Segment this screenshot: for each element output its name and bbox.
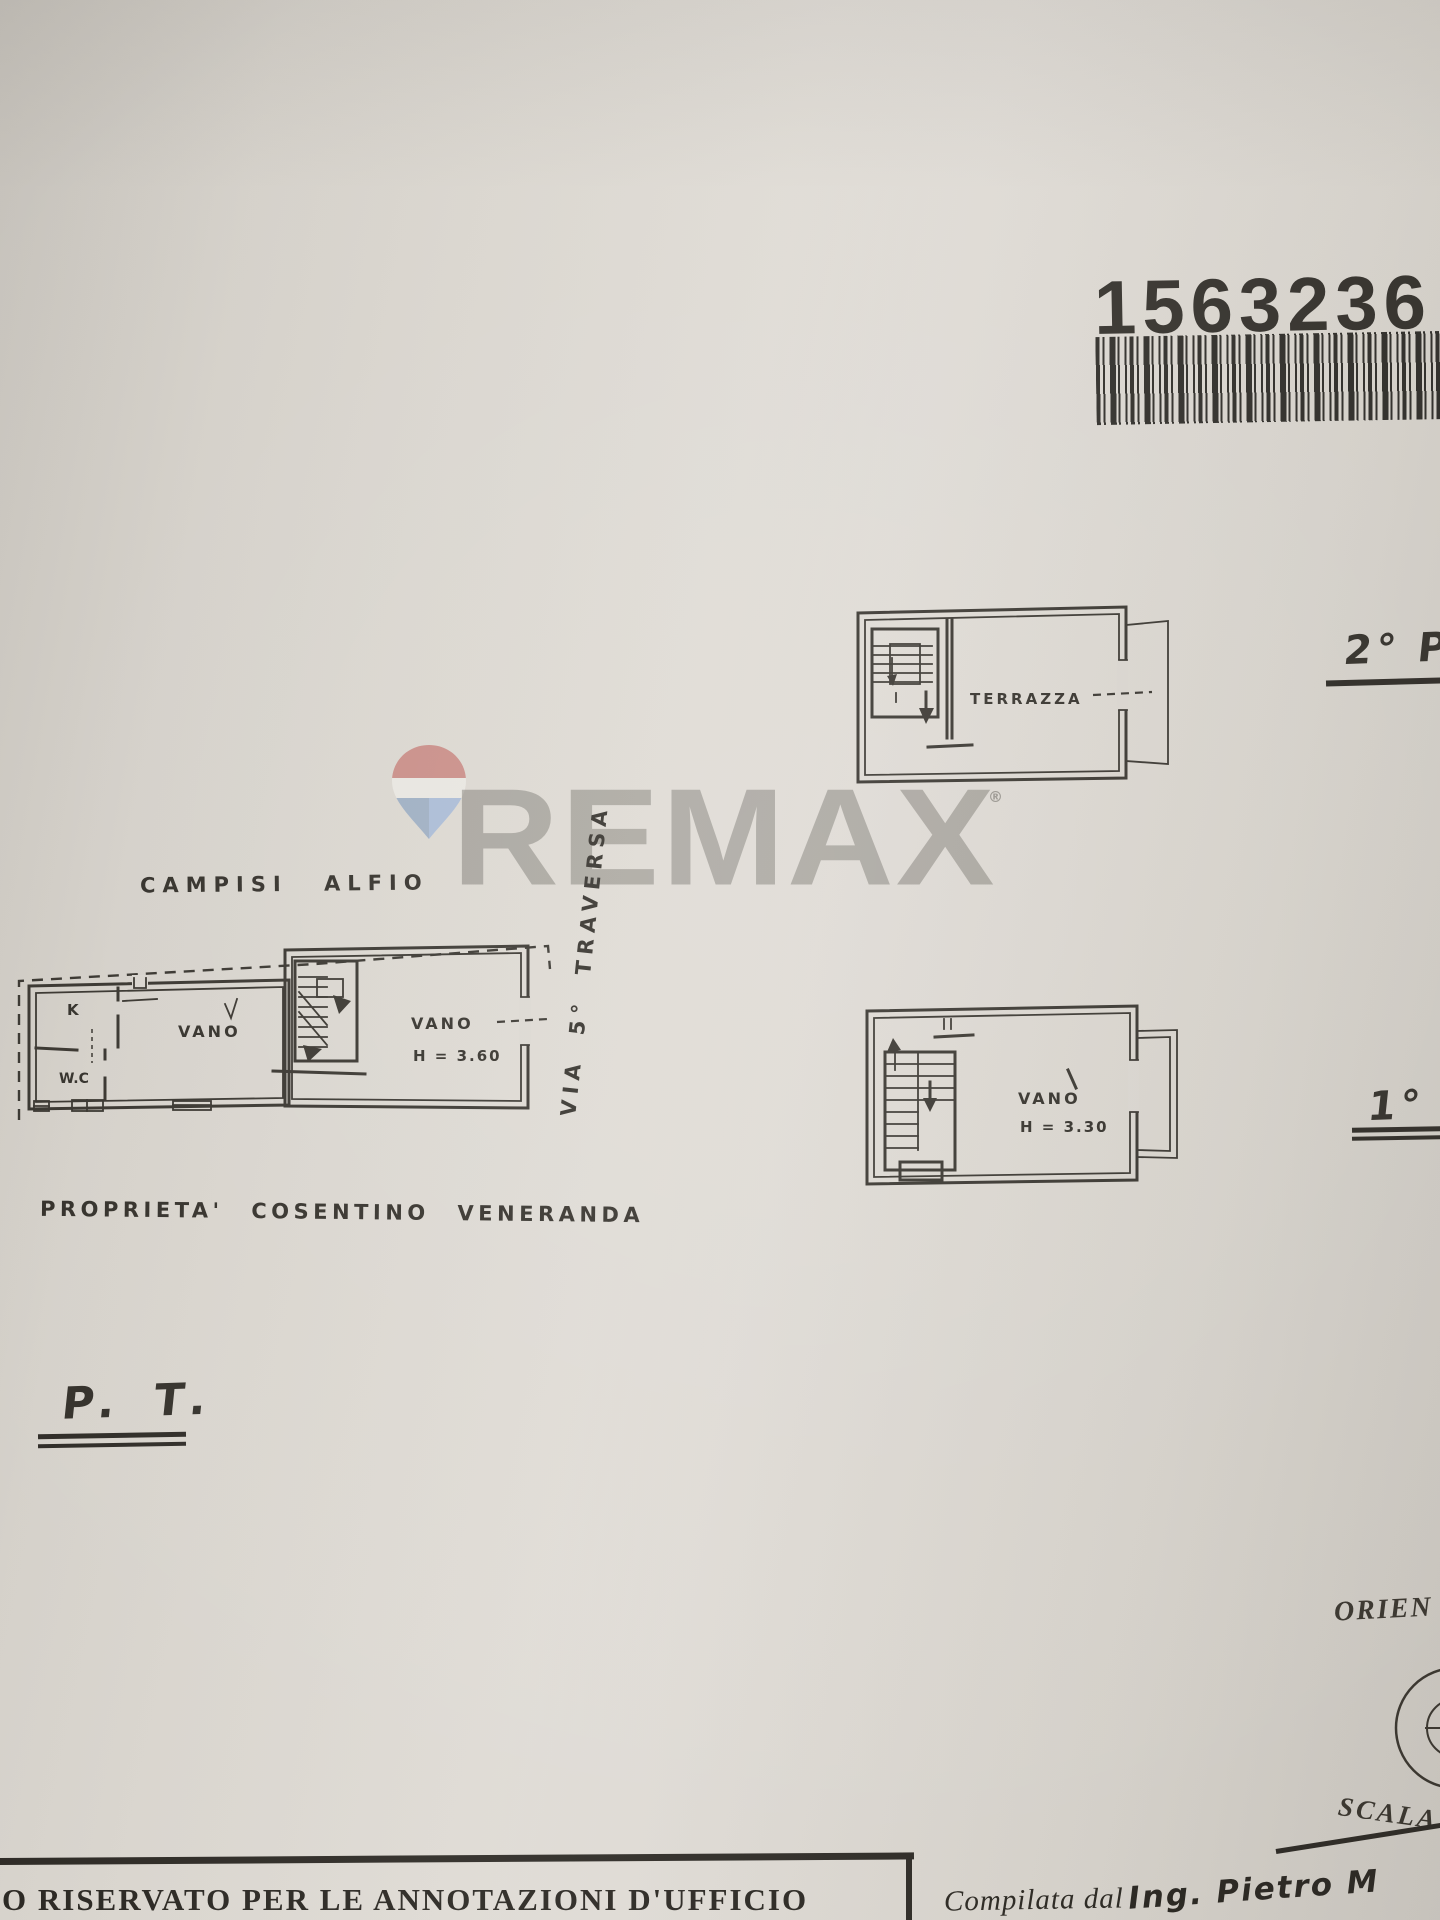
first-floor-title-underline bbox=[1352, 1126, 1440, 1133]
second-floor-title: 2° P. bbox=[1342, 624, 1440, 674]
ground-floor-title: P. T. bbox=[59, 1373, 221, 1430]
ground-floor-title-underline bbox=[38, 1432, 186, 1440]
second-floor-plan: TERRAZZA bbox=[850, 596, 1180, 796]
cadastral-floorplan-scan: 1563236 REMAX ® TERRAZZA 2° P. CAMP bbox=[0, 0, 1440, 1920]
first-floor-title: 1° P. bbox=[1366, 1080, 1440, 1130]
compiled-by-printed-label: Compilata dal bbox=[944, 1882, 1124, 1918]
compass-icon bbox=[1383, 1652, 1440, 1802]
ground-floor-title-underline bbox=[38, 1442, 186, 1449]
annotations-box-right-border bbox=[906, 1859, 912, 1920]
annotations-box-top-border bbox=[0, 1852, 914, 1865]
office-annotations-note: O RISERVATO PER LE ANNOTAZIONI D'UFFICIO bbox=[2, 1882, 808, 1918]
first-floor-plan: VANO H = 3.30 bbox=[855, 1002, 1200, 1217]
first-floor-title-underline bbox=[1352, 1135, 1440, 1141]
ground-floor-plan: K W.C VANO VANO H = 3.60 bbox=[15, 937, 560, 1152]
barcode bbox=[1095, 331, 1440, 425]
orientation-label: ORIEN bbox=[1333, 1591, 1433, 1628]
stair-room-label: VANO bbox=[411, 1014, 474, 1033]
compiled-box-top-border bbox=[1276, 1822, 1440, 1854]
wc-label: W.C bbox=[59, 1071, 89, 1087]
owner-header-label: CAMPISI ALFIO bbox=[140, 870, 429, 897]
living-room-label: VANO bbox=[178, 1022, 241, 1041]
stair-room-height: H = 3.60 bbox=[413, 1047, 502, 1065]
first-floor-room-label: VANO bbox=[1018, 1089, 1081, 1108]
terrace-label: TERRAZZA bbox=[970, 690, 1083, 708]
kitchen-label: K bbox=[67, 1001, 80, 1019]
first-floor-room-height: H = 3.30 bbox=[1020, 1118, 1109, 1136]
compiled-by-handwritten-name: Ing. Pietro M bbox=[1127, 1863, 1381, 1916]
second-floor-title-underline bbox=[1326, 677, 1440, 686]
owner-footer-label: PROPRIETA' COSENTINO VENERANDA bbox=[40, 1197, 644, 1227]
